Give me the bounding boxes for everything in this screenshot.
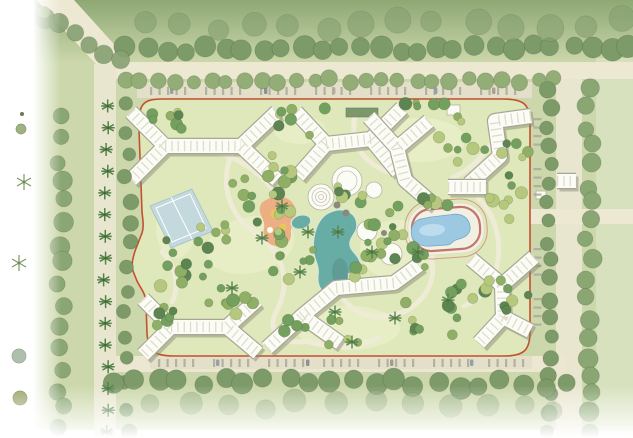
parking-stall-line xyxy=(534,315,542,317)
left-fade xyxy=(33,0,61,438)
parking-stall-line xyxy=(488,359,490,367)
street-tree-icon xyxy=(537,15,564,42)
garden-tree-icon xyxy=(389,223,396,230)
garden-tree-icon xyxy=(438,98,450,110)
street-tree-icon xyxy=(231,40,252,61)
street-tree-icon xyxy=(477,73,494,90)
parking-stall-line xyxy=(323,359,325,367)
parking-stall-line xyxy=(247,359,249,367)
garden-tree-icon xyxy=(194,237,203,246)
garden-tree-icon xyxy=(283,273,294,284)
street-tree-icon xyxy=(139,38,158,57)
parking-stall-line xyxy=(534,298,542,300)
garden-tree-icon xyxy=(447,330,457,340)
parking-stall-line xyxy=(459,87,461,95)
garden-tree-icon xyxy=(484,276,494,286)
garden-tree-icon xyxy=(468,293,478,303)
street-tree-icon xyxy=(272,40,289,57)
parking-stall-line xyxy=(412,359,414,367)
garden-tree-icon xyxy=(400,297,411,308)
street-tree-icon xyxy=(119,126,132,139)
garden-tree-icon xyxy=(278,325,290,337)
street-tree-icon xyxy=(543,351,559,367)
parking-stall-line xyxy=(315,87,317,95)
parking-stall-line xyxy=(184,87,186,95)
street-tree-icon xyxy=(566,37,583,54)
parking-stall-line xyxy=(425,87,427,95)
garden-tree-icon xyxy=(485,193,494,202)
street-tree-icon xyxy=(577,271,595,289)
street-tree-icon xyxy=(580,311,599,330)
street-tree-icon xyxy=(494,72,511,89)
garden-tree-icon xyxy=(358,191,367,200)
parking-stall-line xyxy=(205,87,207,95)
street-tree-icon xyxy=(424,74,438,88)
garden-tree-icon xyxy=(499,200,509,210)
parking-stall-line xyxy=(534,144,542,146)
street-tree-icon xyxy=(67,24,84,41)
garden-tree-icon xyxy=(221,220,229,228)
street-tree-icon xyxy=(313,41,332,60)
street-tree-icon xyxy=(487,37,506,56)
street-tree-icon xyxy=(541,138,557,154)
parking-stall-line xyxy=(324,87,326,95)
parked-car-icon xyxy=(216,360,219,367)
street-tree-icon xyxy=(117,169,132,184)
parking-stall-line xyxy=(192,359,194,367)
parking-stall-line xyxy=(433,359,435,367)
garden-tree-icon xyxy=(461,133,471,143)
garden-tree-icon xyxy=(154,279,167,292)
parking-stall-line xyxy=(404,87,406,95)
parking-stall-line xyxy=(534,185,542,187)
parking-stall-line xyxy=(231,87,233,95)
street-tree-icon xyxy=(441,73,458,90)
street-tree-icon xyxy=(219,75,232,88)
garden-tree-icon xyxy=(503,140,511,148)
street-tree-icon xyxy=(582,153,601,172)
garden-tree-icon xyxy=(443,143,452,152)
garden-tree-icon xyxy=(269,190,277,198)
play-equipment xyxy=(267,227,273,233)
parking-stall-line xyxy=(505,359,507,367)
parking-stall-line xyxy=(534,307,542,309)
street-tree-icon xyxy=(443,40,461,58)
street-tree-icon xyxy=(581,79,599,97)
garden-tree-icon xyxy=(268,266,278,276)
street-tree-icon xyxy=(343,75,359,91)
parking-stall-line xyxy=(387,87,389,95)
garden-tree-icon xyxy=(277,107,287,117)
parking-stall-line xyxy=(514,359,516,367)
garden-tree-icon xyxy=(163,261,173,271)
parking-stall-line xyxy=(341,87,343,95)
garden-tree-icon xyxy=(176,277,188,289)
street-tree-icon xyxy=(255,72,271,88)
parking-stall-line xyxy=(534,194,542,196)
garden-tree-icon xyxy=(334,187,343,196)
parked-car-icon xyxy=(332,88,335,95)
garden-tree-icon xyxy=(222,235,231,244)
shrub-icon xyxy=(16,124,26,134)
street-tree-icon xyxy=(577,97,594,114)
parking-stall-line xyxy=(239,359,241,367)
garden-tree-icon xyxy=(481,145,489,153)
street-tree-icon xyxy=(276,14,298,36)
parking-stall-line xyxy=(277,359,279,367)
street-tree-icon xyxy=(121,285,134,298)
street-tree-icon xyxy=(466,9,492,35)
garden-tree-icon xyxy=(205,299,213,307)
street-tree-icon xyxy=(542,214,555,227)
garden-tree-icon xyxy=(350,261,362,273)
street-tree-icon xyxy=(293,36,316,59)
garden-tree-icon xyxy=(453,157,462,166)
street-tree-icon xyxy=(168,13,190,35)
parking-stall-line xyxy=(222,359,224,367)
garden-tree-icon xyxy=(456,279,466,289)
street-tree-icon xyxy=(577,288,594,305)
parking-stall-line xyxy=(378,359,380,367)
parking-stall-line xyxy=(379,87,381,95)
building-block xyxy=(448,187,489,190)
garden-tree-icon xyxy=(442,200,453,211)
garden-tree-icon xyxy=(503,284,512,293)
street-tree-icon xyxy=(242,12,266,36)
pavilion-roof xyxy=(366,182,382,198)
street-tree-icon xyxy=(575,16,597,38)
garden-tree-icon xyxy=(239,292,251,304)
street-tree-icon xyxy=(187,76,200,89)
street-tree-icon xyxy=(120,351,133,364)
parking-stall-line xyxy=(522,359,524,367)
parking-stall-line xyxy=(340,359,342,367)
garden-tree-icon xyxy=(393,201,403,211)
garden-tree-icon xyxy=(273,120,284,131)
street-tree-icon xyxy=(545,330,558,343)
parking-stall-line xyxy=(285,359,287,367)
garden-tree-icon xyxy=(505,171,513,179)
street-tree-icon xyxy=(542,310,558,326)
street-tree-icon xyxy=(584,135,601,152)
garden-tree-icon xyxy=(467,142,480,155)
parking-stall-line xyxy=(442,359,444,367)
garden-tree-icon xyxy=(154,307,166,319)
garden-tree-icon xyxy=(253,218,262,227)
garden-tree-icon xyxy=(211,228,220,237)
street-tree-icon xyxy=(582,37,603,58)
street-tree-icon xyxy=(309,74,322,87)
street-tree-icon xyxy=(123,215,139,231)
parking-stall-line xyxy=(184,359,186,367)
parking-stall-line xyxy=(230,359,232,367)
street-tree-icon xyxy=(237,73,253,89)
street-tree-icon xyxy=(348,11,374,37)
garden-tree-icon xyxy=(174,110,183,119)
street-tree-icon xyxy=(544,252,559,267)
street-tree-icon xyxy=(119,97,133,111)
garden-tree-icon xyxy=(399,97,412,110)
garden-tree-icon xyxy=(364,239,371,246)
garden-tree-icon xyxy=(511,138,521,148)
garden-tree-icon xyxy=(217,284,225,292)
garden-tree-icon xyxy=(519,154,526,161)
street-tree-icon xyxy=(385,7,411,33)
parking-stall-line xyxy=(534,324,542,326)
garden-tree-icon xyxy=(385,208,394,217)
garden-tree-icon xyxy=(275,251,284,260)
parked-car-icon xyxy=(306,360,309,367)
parking-stall-line xyxy=(387,359,389,367)
garden-tree-icon xyxy=(176,124,186,134)
parking-stall-line xyxy=(396,87,398,95)
street-tree-icon xyxy=(540,237,554,251)
garden-tree-icon xyxy=(169,307,177,315)
street-tree-icon xyxy=(463,72,477,86)
garden-tree-icon xyxy=(502,305,511,314)
parking-stall-line xyxy=(158,359,160,367)
garden-tree-icon xyxy=(496,276,506,286)
parking-stall-line xyxy=(459,359,461,367)
garden-tree-icon xyxy=(226,294,239,307)
street-tree-icon xyxy=(390,73,404,87)
street-tree-icon xyxy=(542,269,558,285)
garden-tree-icon xyxy=(291,320,302,331)
parking-stall-line xyxy=(534,168,542,170)
street-tree-icon xyxy=(579,329,597,347)
garden-tree-icon xyxy=(515,186,527,198)
parking-stall-line xyxy=(534,177,542,179)
street-tree-icon xyxy=(151,73,167,89)
garden-tree-icon xyxy=(433,131,445,143)
street-tree-icon xyxy=(253,369,271,387)
street-tree-icon xyxy=(205,73,221,89)
garden-tree-icon xyxy=(300,258,307,265)
parking-stall-line xyxy=(534,118,542,120)
parking-stall-line xyxy=(302,359,304,367)
street-tree-icon xyxy=(321,70,338,87)
parking-stall-line xyxy=(175,359,177,367)
garden-tree-icon xyxy=(285,114,297,126)
parking-stall-line xyxy=(294,359,296,367)
garden-tree-icon xyxy=(230,308,242,320)
parking-stall-line xyxy=(357,359,359,367)
garden-tree-icon xyxy=(284,205,296,217)
building-block xyxy=(557,181,579,184)
garden-tree-icon xyxy=(384,237,392,245)
garden-tree-icon xyxy=(287,104,297,114)
bottom-fade xyxy=(0,385,633,438)
parking-stall-line xyxy=(269,87,271,95)
parking-stall-line xyxy=(497,87,499,95)
street-tree-icon xyxy=(542,293,558,309)
parking-stall-line xyxy=(167,87,169,95)
garden-tree-icon xyxy=(368,218,381,231)
garden-tree-icon xyxy=(262,170,274,182)
street-tree-icon xyxy=(208,20,228,40)
parking-stall-line xyxy=(450,359,452,367)
garden-tree-icon xyxy=(202,242,214,254)
parking-stall-line xyxy=(534,248,542,250)
street-tree-icon xyxy=(269,74,285,90)
street-tree-icon xyxy=(498,14,524,40)
street-tree-icon xyxy=(540,121,554,135)
parking-stall-line xyxy=(370,87,372,95)
garden-tree-icon xyxy=(241,175,249,183)
left-page-margin xyxy=(0,0,34,438)
garden-tree-icon xyxy=(415,325,424,334)
street-tree-icon xyxy=(609,5,633,31)
garden-tree-icon xyxy=(197,223,206,232)
street-tree-icon xyxy=(289,73,304,88)
garden-tree-icon xyxy=(424,201,432,209)
street-tree-icon xyxy=(577,231,593,247)
street-tree-icon xyxy=(582,210,599,227)
street-tree-icon xyxy=(411,74,426,89)
garden-tree-icon xyxy=(376,249,386,259)
garden-tree-icon xyxy=(454,146,461,153)
parked-car-icon xyxy=(470,360,473,367)
parking-stall-line xyxy=(404,359,406,367)
street-tree-icon xyxy=(540,195,554,209)
street-tree-icon xyxy=(408,43,426,61)
garden-tree-icon xyxy=(305,131,313,139)
garden-tree-icon xyxy=(507,181,515,189)
garden-tree-icon xyxy=(181,259,192,270)
street-tree-icon xyxy=(503,39,525,61)
garden-tree-icon xyxy=(445,286,457,298)
garden-tree-icon xyxy=(524,291,532,299)
parking-stall-line xyxy=(497,359,499,367)
parked-car-icon xyxy=(390,360,393,367)
street-tree-icon xyxy=(374,72,388,86)
garden-tree-icon xyxy=(281,167,289,175)
plant-dot-icon xyxy=(20,112,24,116)
street-tree-icon xyxy=(118,331,131,344)
street-tree-icon xyxy=(539,82,556,99)
garden-tree-icon xyxy=(324,340,333,349)
parking-stall-line xyxy=(506,87,508,95)
street-tree-icon xyxy=(351,38,369,56)
parking-stall-line xyxy=(467,359,469,367)
street-tree-icon xyxy=(370,36,392,58)
street-tree-icon xyxy=(359,73,374,88)
garden-tree-icon xyxy=(204,260,213,269)
street-tree-icon xyxy=(583,192,601,210)
street-tree-icon xyxy=(578,349,598,369)
garden-tree-icon xyxy=(169,249,177,257)
garden-tree-icon xyxy=(428,99,440,111)
parking-stall-line xyxy=(534,274,542,276)
site-plan-canvas xyxy=(0,0,633,438)
garden-tree-icon xyxy=(414,103,421,110)
parking-stall-line xyxy=(395,359,397,367)
street-tree-icon xyxy=(123,234,138,249)
parking-stall-line xyxy=(286,87,288,95)
garden-tree-icon xyxy=(228,179,237,188)
parking-stall-line xyxy=(167,359,169,367)
garden-tree-icon xyxy=(163,236,171,244)
parked-car-icon xyxy=(492,88,495,95)
street-tree-icon xyxy=(159,42,178,61)
garden-tree-icon xyxy=(496,147,507,158)
street-tree-icon xyxy=(582,367,600,385)
site-plan-page xyxy=(0,0,633,438)
street-tree-icon xyxy=(318,18,341,41)
garden-tree-icon xyxy=(457,118,465,126)
street-tree-icon xyxy=(123,148,136,161)
street-tree-icon xyxy=(112,51,130,69)
street-tree-icon xyxy=(464,35,484,55)
garden-tree-icon xyxy=(268,151,277,160)
garden-tree-icon xyxy=(199,273,206,280)
street-tree-icon xyxy=(168,74,184,90)
parking-stall-line xyxy=(294,87,296,95)
street-tree-icon xyxy=(543,99,560,116)
garden-tree-icon xyxy=(152,320,162,330)
street-tree-icon xyxy=(119,260,133,274)
street-tree-icon xyxy=(135,11,157,33)
garden-tree-icon xyxy=(243,200,255,212)
garden-tree-icon xyxy=(149,116,157,124)
street-tree-icon xyxy=(542,177,555,190)
garden-tree-icon xyxy=(421,263,428,270)
street-tree-icon xyxy=(583,249,602,268)
parking-stall-line xyxy=(213,359,215,367)
shrub-icon xyxy=(12,349,26,363)
street-tree-icon xyxy=(123,194,139,210)
garden-tree-icon xyxy=(504,214,514,224)
street-tree-icon xyxy=(116,304,130,318)
garden-tree-icon xyxy=(248,192,256,200)
street-tree-icon xyxy=(545,157,558,170)
parking-stall-line xyxy=(349,359,351,367)
street-tree-icon xyxy=(177,44,194,61)
garden-tree-icon xyxy=(309,246,316,253)
street-tree-icon xyxy=(94,45,113,64)
parking-stall-line xyxy=(534,135,542,137)
parking-stall-line xyxy=(268,359,270,367)
garden-tree-icon xyxy=(274,228,282,236)
street-tree-icon xyxy=(282,369,300,387)
parking-stall-line xyxy=(332,359,334,367)
street-tree-icon xyxy=(131,73,147,89)
garden-tree-icon xyxy=(390,253,401,264)
garden-tree-icon xyxy=(453,314,461,322)
street-tree-icon xyxy=(421,11,442,32)
parking-stall-line xyxy=(150,87,152,95)
garden-tree-icon xyxy=(335,317,343,325)
garden-tree-icon xyxy=(319,103,330,114)
street-tree-icon xyxy=(511,75,527,91)
